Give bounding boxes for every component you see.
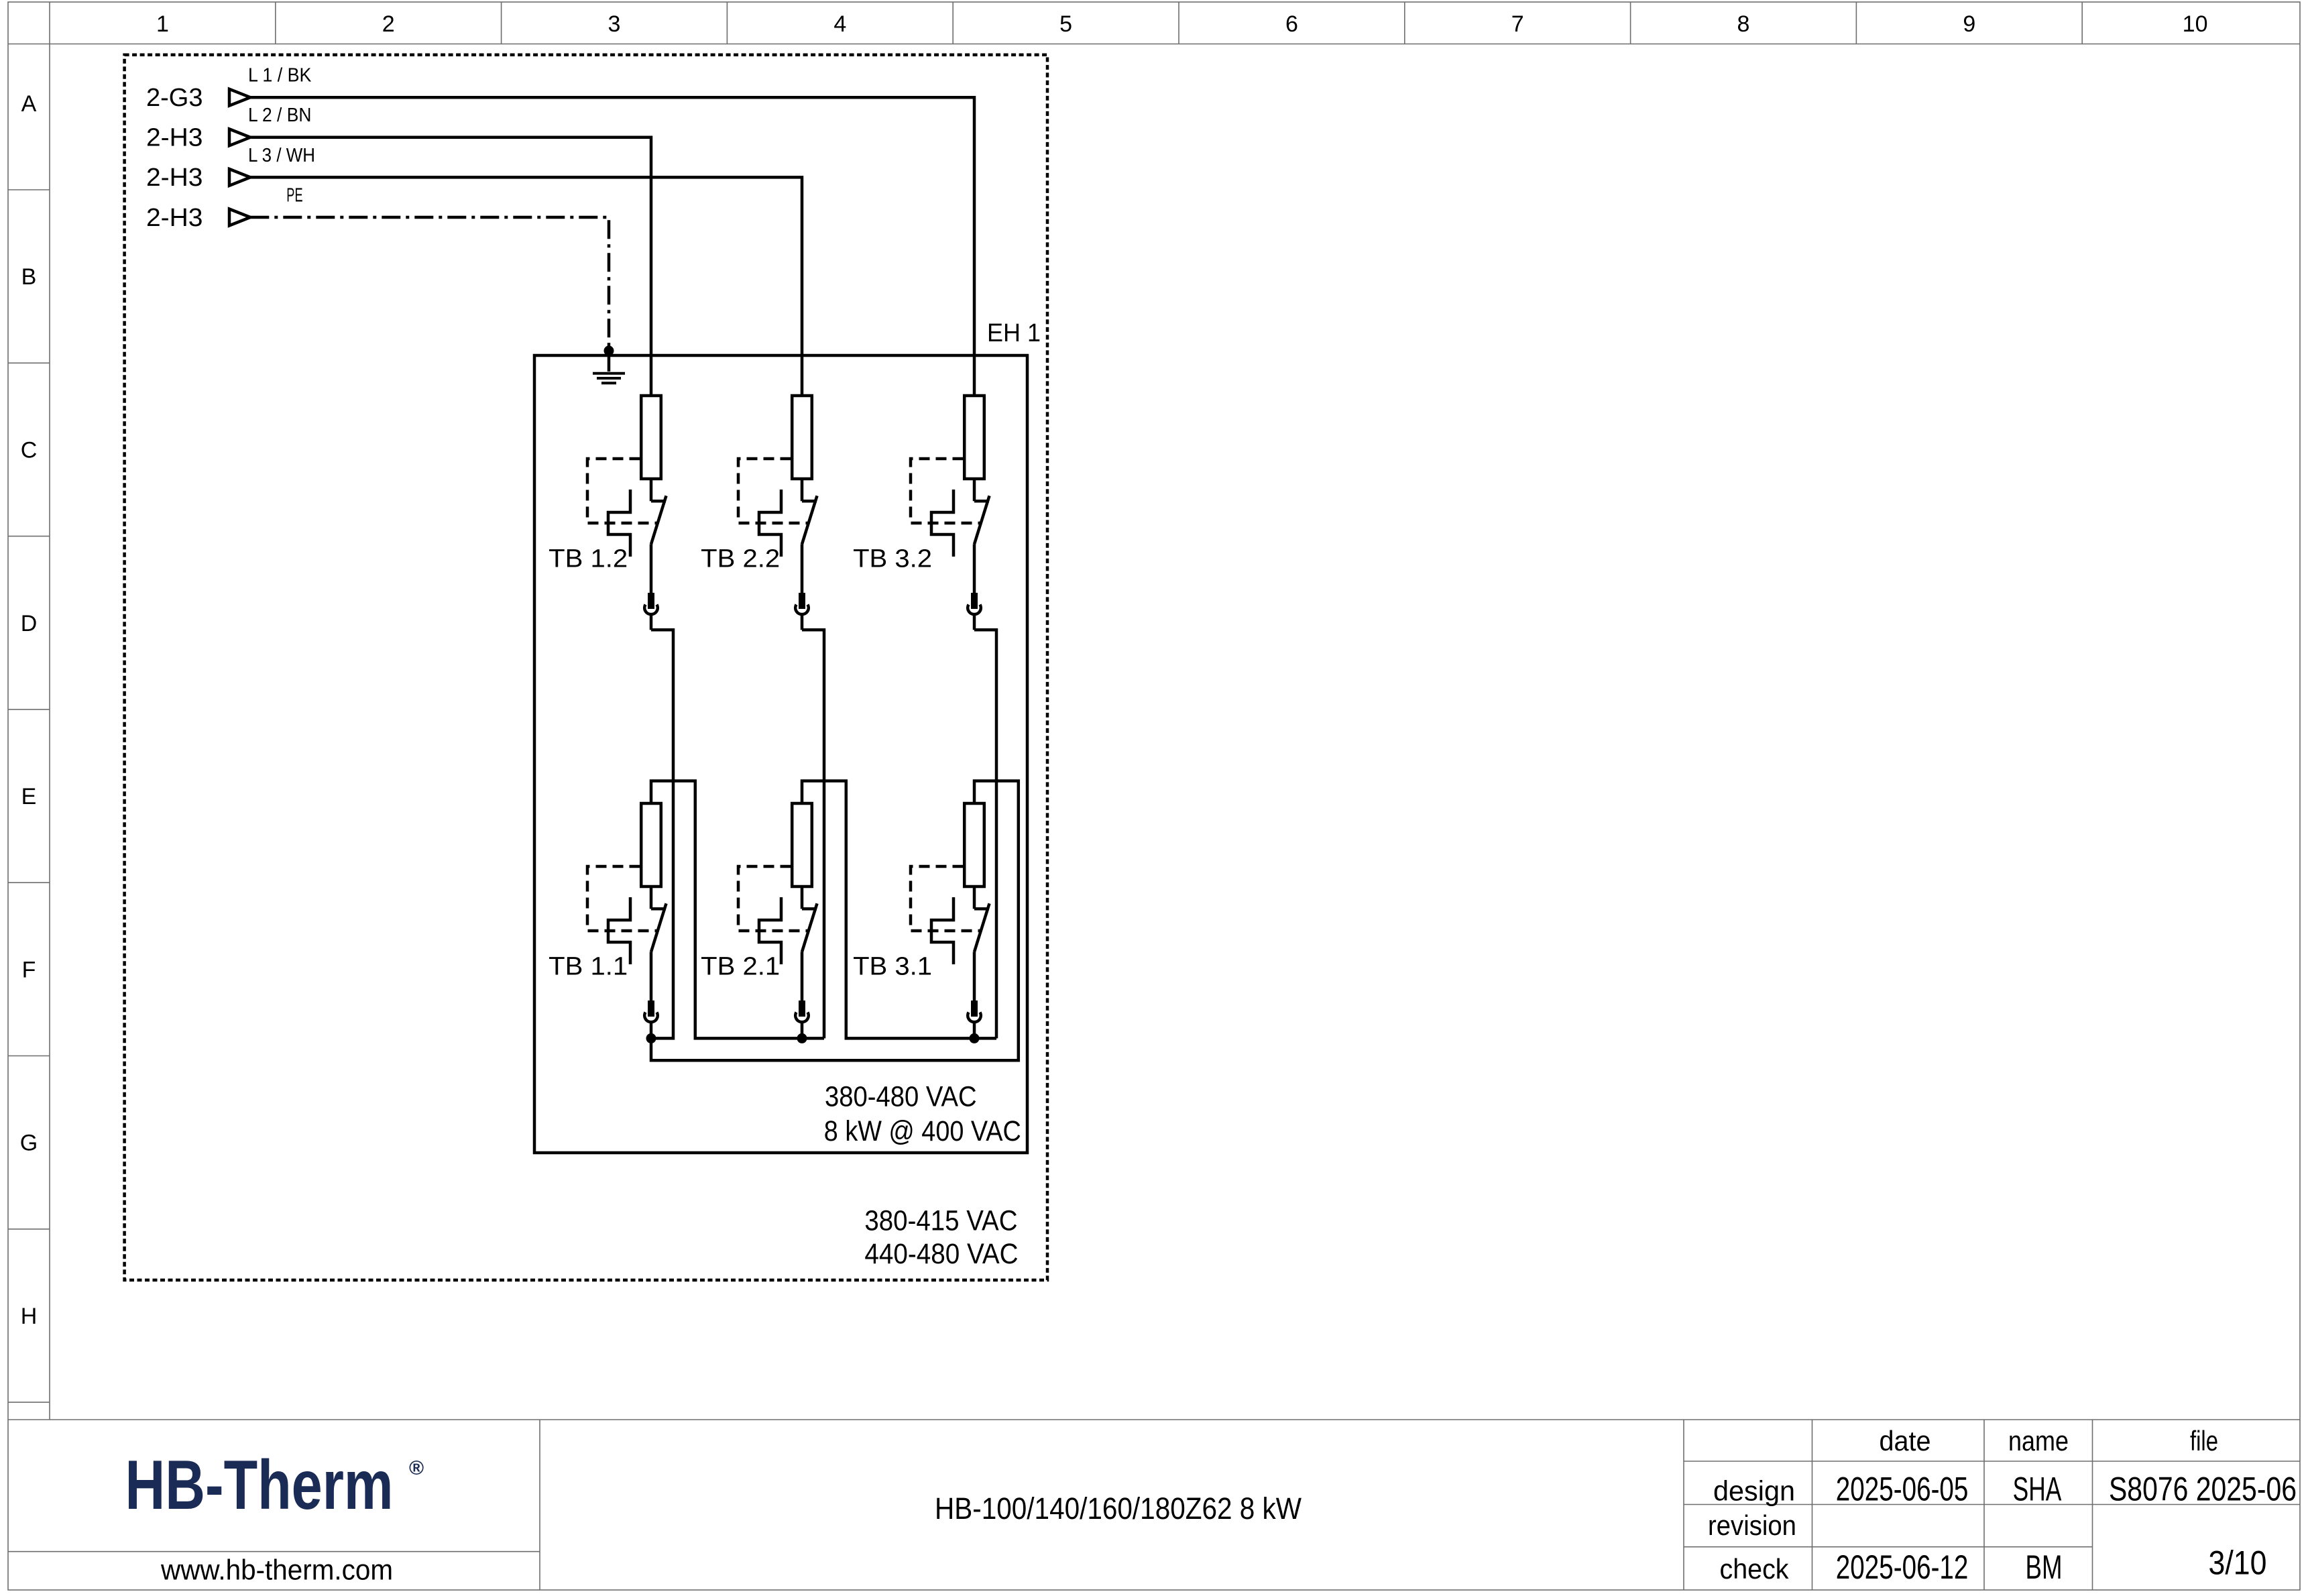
svg-text:®: ® — [409, 1457, 424, 1479]
svg-text:PE: PE — [286, 184, 302, 206]
svg-text:check: check — [1720, 1553, 1790, 1585]
svg-text:TB 1.1: TB 1.1 — [549, 952, 628, 980]
svg-text:4: 4 — [833, 11, 846, 37]
svg-text:8 kW @ 400 VAC: 8 kW @ 400 VAC — [824, 1115, 1021, 1147]
svg-text:L 1 / BK: L 1 / BK — [248, 65, 311, 87]
svg-text:HB-100/140/160/180Z62 8 kW: HB-100/140/160/180Z62 8 kW — [935, 1491, 1302, 1526]
svg-text:7: 7 — [1511, 11, 1524, 37]
svg-text:6: 6 — [1285, 11, 1298, 37]
svg-text:9: 9 — [1963, 11, 1975, 37]
svg-text:www.hb-therm.com: www.hb-therm.com — [160, 1554, 393, 1587]
svg-text:2-H3: 2-H3 — [146, 124, 203, 152]
svg-text:H: H — [21, 1304, 38, 1329]
svg-text:5: 5 — [1059, 11, 1072, 37]
svg-text:D: D — [21, 611, 38, 636]
svg-text:2025-06-12: 2025-06-12 — [1836, 1548, 1969, 1586]
svg-text:F: F — [22, 957, 36, 982]
svg-text:TB 2.1: TB 2.1 — [701, 952, 780, 980]
svg-text:E: E — [21, 784, 37, 809]
svg-text:date: date — [1880, 1425, 1931, 1457]
svg-text:S8076 2025-06: S8076 2025-06 — [2109, 1470, 2297, 1507]
svg-text:SHA: SHA — [2013, 1470, 2062, 1507]
svg-text:2-H3: 2-H3 — [146, 204, 203, 232]
svg-text:BM: BM — [2026, 1548, 2063, 1586]
svg-text:A: A — [21, 91, 37, 117]
svg-text:3: 3 — [608, 11, 621, 37]
svg-text:2-G3: 2-G3 — [146, 84, 203, 112]
svg-text:380-480 VAC: 380-480 VAC — [825, 1081, 977, 1113]
svg-text:2: 2 — [382, 11, 395, 37]
svg-text:HB-Therm: HB-Therm — [125, 1446, 394, 1524]
svg-text:1: 1 — [156, 11, 169, 37]
svg-text:name: name — [2008, 1425, 2069, 1457]
svg-text:EH 1: EH 1 — [987, 319, 1041, 347]
svg-text:G: G — [20, 1131, 38, 1156]
svg-text:TB 3.2: TB 3.2 — [853, 545, 932, 573]
svg-text:TB 2.2: TB 2.2 — [701, 545, 780, 573]
svg-text:TB 3.1: TB 3.1 — [853, 952, 932, 980]
svg-text:10: 10 — [2183, 11, 2208, 37]
svg-text:380-415 VAC: 380-415 VAC — [864, 1204, 1017, 1237]
svg-text:B: B — [21, 264, 37, 290]
svg-text:file: file — [2190, 1425, 2218, 1457]
svg-text:L 2 / BN: L 2 / BN — [248, 105, 311, 126]
svg-text:revision: revision — [1708, 1509, 1796, 1541]
svg-text:2-H3: 2-H3 — [146, 164, 203, 192]
svg-text:2025-06-05: 2025-06-05 — [1836, 1470, 1969, 1507]
svg-text:8: 8 — [1737, 11, 1750, 37]
svg-text:3/10: 3/10 — [2209, 1544, 2267, 1582]
svg-text:L 3 / WH: L 3 / WH — [248, 145, 315, 166]
svg-text:design: design — [1713, 1475, 1795, 1507]
svg-text:C: C — [21, 437, 38, 463]
svg-text:TB 1.2: TB 1.2 — [549, 545, 628, 573]
svg-text:440-480 VAC: 440-480 VAC — [864, 1238, 1018, 1270]
